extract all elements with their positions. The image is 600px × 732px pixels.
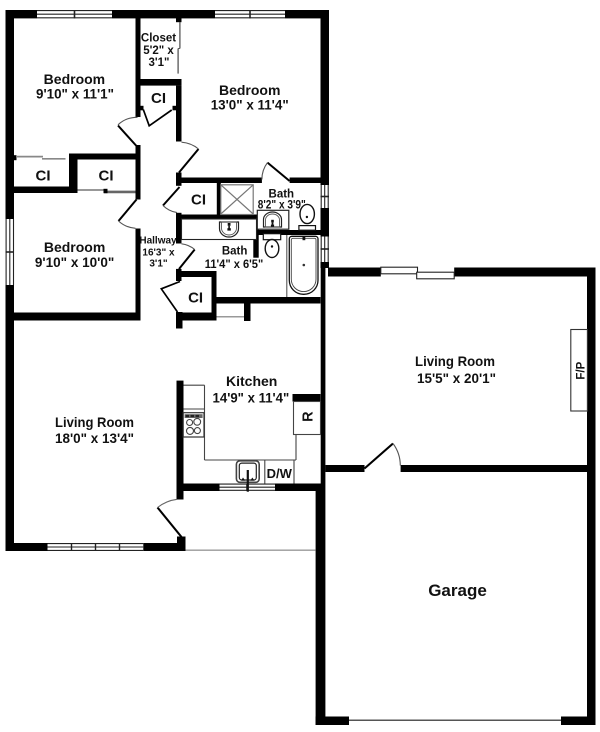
svg-text:Garage: Garage bbox=[428, 581, 487, 600]
svg-text:13'0" x 11'4": 13'0" x 11'4" bbox=[211, 97, 289, 113]
svg-text:R: R bbox=[301, 411, 317, 422]
svg-text:D/W: D/W bbox=[267, 466, 293, 481]
svg-text:CI: CI bbox=[191, 192, 206, 209]
svg-text:9'10" x 11'1": 9'10" x 11'1" bbox=[36, 86, 114, 102]
svg-text:Bedroom: Bedroom bbox=[44, 239, 105, 255]
svg-text:9'10" x 10'0": 9'10" x 10'0" bbox=[35, 254, 115, 270]
svg-text:Hallway: Hallway bbox=[139, 236, 177, 247]
svg-text:CI: CI bbox=[188, 290, 203, 307]
svg-text:CI: CI bbox=[99, 168, 114, 185]
svg-text:F/P: F/P bbox=[575, 361, 587, 379]
svg-text:Closet: Closet bbox=[141, 32, 176, 44]
svg-text:18'0" x 13'4": 18'0" x 13'4" bbox=[55, 430, 134, 446]
svg-text:14'9" x 11'4": 14'9" x 11'4" bbox=[213, 390, 290, 406]
svg-text:16'3" x: 16'3" x bbox=[142, 248, 175, 259]
svg-text:CI: CI bbox=[36, 168, 51, 185]
svg-text:3'1": 3'1" bbox=[149, 57, 170, 69]
svg-text:15'5" x 20'1": 15'5" x 20'1" bbox=[417, 370, 496, 386]
svg-text:Kitchen: Kitchen bbox=[226, 373, 277, 389]
svg-text:Bath: Bath bbox=[222, 246, 248, 258]
svg-text:Living Room: Living Room bbox=[55, 414, 134, 430]
svg-text:3'1": 3'1" bbox=[149, 259, 168, 270]
svg-text:5'2" x: 5'2" x bbox=[143, 45, 174, 57]
svg-text:11'4" x 6'5": 11'4" x 6'5" bbox=[205, 259, 264, 271]
svg-text:Living Room: Living Room bbox=[415, 353, 495, 369]
svg-text:8'2" x 3'9": 8'2" x 3'9" bbox=[258, 200, 306, 212]
svg-text:CI: CI bbox=[151, 90, 166, 107]
